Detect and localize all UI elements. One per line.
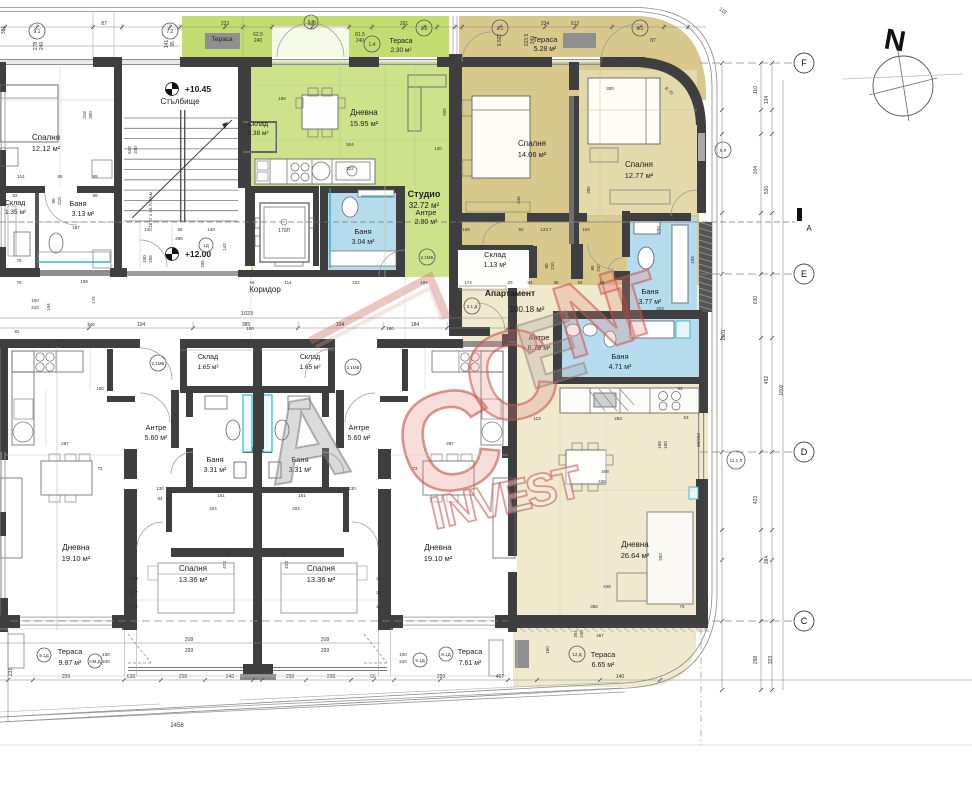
svg-text:99: 99 xyxy=(92,193,98,198)
svg-text:143: 143 xyxy=(222,243,227,251)
svg-text:104: 104 xyxy=(137,322,146,328)
svg-text:530: 530 xyxy=(764,186,770,195)
svg-text:+10.45: +10.45 xyxy=(185,84,212,94)
svg-text:300: 300 xyxy=(376,576,384,581)
svg-text:Тераса: Тераса xyxy=(533,35,558,44)
svg-text:2458: 2458 xyxy=(170,723,184,729)
svg-text:240: 240 xyxy=(579,630,584,638)
svg-text:Спалня: Спалня xyxy=(32,133,60,142)
svg-text:151: 151 xyxy=(217,493,225,498)
svg-text:188: 188 xyxy=(462,227,470,232)
svg-text:Дневна: Дневна xyxy=(424,543,452,552)
svg-text:Склад: Склад xyxy=(300,354,320,361)
svg-text:84: 84 xyxy=(157,496,163,501)
svg-text:15.95 м²: 15.95 м² xyxy=(350,119,379,128)
svg-text:D: D xyxy=(801,447,808,457)
svg-text:333: 333 xyxy=(656,306,664,311)
svg-text:168: 168 xyxy=(657,441,662,449)
svg-text:A: A xyxy=(806,224,812,233)
svg-text:504: 504 xyxy=(346,142,354,147)
svg-text:252: 252 xyxy=(376,604,384,609)
svg-text:104: 104 xyxy=(242,338,250,343)
svg-text:199: 199 xyxy=(80,279,88,284)
svg-text:Дневна: Дневна xyxy=(621,540,649,549)
svg-text:75: 75 xyxy=(16,258,22,263)
svg-text:8 Л: 8 Л xyxy=(720,148,727,153)
svg-text:72: 72 xyxy=(97,466,103,471)
svg-text:130: 130 xyxy=(348,486,356,491)
svg-text:Дневна: Дневна xyxy=(350,108,378,117)
svg-text:210: 210 xyxy=(596,264,601,272)
svg-text:318: 318 xyxy=(82,111,87,119)
svg-text:240: 240 xyxy=(102,659,110,664)
svg-text:14.06 м²: 14.06 м² xyxy=(518,150,547,159)
svg-text:255: 255 xyxy=(148,255,153,263)
svg-text:300: 300 xyxy=(130,576,138,581)
svg-text:1.65 м²: 1.65 м² xyxy=(299,364,321,371)
svg-text:160: 160 xyxy=(545,646,550,654)
svg-text:113: 113 xyxy=(533,416,541,421)
svg-text:165: 165 xyxy=(616,56,624,61)
svg-text:84: 84 xyxy=(577,280,583,285)
svg-text:467: 467 xyxy=(596,633,604,638)
svg-text:3.13 м²: 3.13 м² xyxy=(72,211,95,218)
svg-text:1023: 1023 xyxy=(241,311,253,317)
svg-text:229.5: 229.5 xyxy=(495,34,501,47)
svg-text:123.7: 123.7 xyxy=(540,227,552,232)
svg-text:298: 298 xyxy=(286,674,295,680)
svg-text:232: 232 xyxy=(352,280,360,285)
svg-text:187: 187 xyxy=(72,225,80,230)
svg-text:Тераса: Тераса xyxy=(458,647,483,656)
svg-text:75: 75 xyxy=(679,604,685,609)
svg-text:287: 287 xyxy=(61,441,69,446)
svg-text:114: 114 xyxy=(17,174,25,179)
svg-text:Антре: Антре xyxy=(349,423,370,432)
svg-text:Тераса: Тераса xyxy=(211,36,233,43)
svg-text:53: 53 xyxy=(677,386,683,391)
svg-text:210: 210 xyxy=(57,197,62,205)
svg-text:2.1МБ: 2.1МБ xyxy=(347,365,360,370)
svg-text:180: 180 xyxy=(96,386,104,391)
svg-text:104: 104 xyxy=(420,280,428,285)
svg-text:75: 75 xyxy=(16,280,22,285)
svg-text:Спалня: Спалня xyxy=(518,139,546,148)
svg-text:Баня: Баня xyxy=(354,227,371,236)
svg-text:210: 210 xyxy=(550,262,555,270)
svg-text:250: 250 xyxy=(656,226,661,234)
svg-text:Спалня: Спалня xyxy=(179,564,207,573)
svg-text:160: 160 xyxy=(663,441,668,449)
svg-text:385: 385 xyxy=(586,186,591,194)
svg-text:Баня: Баня xyxy=(69,199,86,208)
svg-text:E: E xyxy=(801,269,807,279)
svg-text:175: 175 xyxy=(91,296,96,304)
svg-text:Студио: Студио xyxy=(408,189,441,199)
svg-text:1.4: 1.4 xyxy=(369,42,376,48)
svg-text:231: 231 xyxy=(8,668,14,677)
svg-text:+12.00: +12.00 xyxy=(185,249,212,259)
svg-text:423: 423 xyxy=(284,561,289,569)
svg-text:240: 240 xyxy=(133,146,138,154)
svg-text:204: 204 xyxy=(753,166,759,175)
svg-text:441: 441 xyxy=(280,549,285,557)
svg-text:381: 381 xyxy=(1,26,7,35)
svg-text:134: 134 xyxy=(764,96,770,105)
svg-text:1501: 1501 xyxy=(721,329,727,340)
svg-text:92: 92 xyxy=(12,193,18,198)
svg-text:2.1МБ: 2.1МБ xyxy=(421,255,434,260)
svg-text:5.60 м²: 5.60 м² xyxy=(145,435,168,442)
svg-text:7.61 м²: 7.61 м² xyxy=(459,660,482,667)
svg-text:287: 287 xyxy=(130,590,138,595)
svg-text:261: 261 xyxy=(400,21,409,27)
svg-text:9.87 м²: 9.87 м² xyxy=(59,660,82,667)
svg-text:9.1Д: 9.1Д xyxy=(415,658,424,663)
svg-text:Тераса: Тераса xyxy=(591,650,616,659)
svg-text:12 Д: 12 Д xyxy=(572,652,581,657)
svg-text:1.13 м²: 1.13 м² xyxy=(484,262,507,269)
svg-text:1Д: 1Д xyxy=(203,243,209,248)
svg-text:80: 80 xyxy=(51,198,56,204)
svg-text:293: 293 xyxy=(614,416,622,421)
svg-text:54: 54 xyxy=(599,280,605,285)
svg-text:140: 140 xyxy=(207,227,215,232)
svg-text:318: 318 xyxy=(321,637,330,643)
svg-text:1.65 м²: 1.65 м² xyxy=(197,364,219,371)
svg-text:36: 36 xyxy=(553,280,559,285)
svg-text:252: 252 xyxy=(130,604,138,609)
svg-text:26.64 м²: 26.64 м² xyxy=(621,551,650,560)
svg-text:300: 300 xyxy=(606,86,614,91)
svg-text:170Л: 170Л xyxy=(278,228,290,234)
svg-text:8.1Д: 8.1Д xyxy=(441,652,450,657)
svg-text:84: 84 xyxy=(527,280,533,285)
svg-text:Стълбище: Стълбище xyxy=(160,97,200,106)
svg-text:Тераса: Тераса xyxy=(58,647,83,656)
svg-text:Дневна: Дневна xyxy=(62,543,90,552)
svg-text:180: 180 xyxy=(386,326,394,331)
svg-text:151: 151 xyxy=(298,493,306,498)
svg-text:11.1 Л: 11.1 Л xyxy=(730,458,743,463)
svg-text:458: 458 xyxy=(603,584,611,589)
svg-text:Коридор: Коридор xyxy=(249,285,281,294)
svg-text:293: 293 xyxy=(185,648,194,654)
svg-text:12.12 м²: 12.12 м² xyxy=(32,144,61,153)
svg-text:F: F xyxy=(801,58,807,68)
svg-text:299: 299 xyxy=(62,674,71,680)
svg-text:210: 210 xyxy=(31,305,39,310)
svg-text:80/203: 80/203 xyxy=(696,433,701,447)
svg-text:505: 505 xyxy=(442,108,447,116)
svg-text:2.1МБ: 2.1МБ xyxy=(152,361,165,366)
svg-text:612: 612 xyxy=(571,21,580,27)
svg-text:130: 130 xyxy=(156,486,164,491)
svg-text:322: 322 xyxy=(346,166,354,171)
svg-text:1602: 1602 xyxy=(779,384,785,395)
svg-text:350: 350 xyxy=(88,111,93,119)
svg-text:13.36 м²: 13.36 м² xyxy=(179,575,208,584)
svg-text:19.10 м²: 19.10 м² xyxy=(62,554,91,563)
svg-text:12.77 м²: 12.77 м² xyxy=(625,171,654,180)
svg-text:80: 80 xyxy=(590,265,595,271)
svg-text:467: 467 xyxy=(496,674,505,680)
svg-text:358: 358 xyxy=(590,604,598,609)
svg-text:194: 194 xyxy=(46,303,51,311)
svg-text:104: 104 xyxy=(336,322,345,328)
svg-text:66: 66 xyxy=(249,280,255,285)
svg-text:630: 630 xyxy=(753,296,759,305)
svg-text:9.1Д: 9.1Д xyxy=(39,653,48,658)
svg-text:Склад: Склад xyxy=(248,121,268,128)
svg-text:5.28 м²: 5.28 м² xyxy=(534,46,557,53)
svg-text:Склад: Склад xyxy=(484,250,506,259)
svg-text:НМ Д: НМ Д xyxy=(89,659,100,664)
svg-text:132: 132 xyxy=(308,21,317,27)
svg-text:106: 106 xyxy=(690,256,695,264)
svg-text:638: 638 xyxy=(127,674,136,680)
svg-text:445: 445 xyxy=(226,549,231,557)
svg-text:240: 240 xyxy=(226,674,235,680)
svg-text:92: 92 xyxy=(518,227,524,232)
svg-text:223: 223 xyxy=(221,21,230,27)
svg-text:100: 100 xyxy=(31,298,39,303)
svg-text:295: 295 xyxy=(200,260,205,268)
svg-text:436: 436 xyxy=(598,479,606,484)
svg-text:318: 318 xyxy=(185,637,194,643)
svg-text:240: 240 xyxy=(254,38,263,44)
svg-text:Спалня: Спалня xyxy=(307,564,335,573)
svg-text:53: 53 xyxy=(683,415,689,420)
svg-text:Антре: Антре xyxy=(416,208,437,217)
svg-text:204: 204 xyxy=(292,506,300,511)
svg-text:240: 240 xyxy=(356,38,365,44)
svg-text:2.1 Д: 2.1 Д xyxy=(467,304,478,309)
svg-text:458: 458 xyxy=(601,469,609,474)
svg-text:354: 354 xyxy=(573,630,578,638)
svg-text:240: 240 xyxy=(39,42,45,51)
svg-text:3.31 м²: 3.31 м² xyxy=(204,467,227,474)
svg-text:452: 452 xyxy=(764,376,770,385)
svg-text:174: 174 xyxy=(464,280,472,285)
svg-text:2.30 м²: 2.30 м² xyxy=(390,47,412,54)
svg-text:202: 202 xyxy=(658,553,663,561)
svg-text:523: 523 xyxy=(127,146,132,154)
svg-text:Спалня: Спалня xyxy=(625,160,653,169)
svg-text:140: 140 xyxy=(144,227,152,232)
svg-text:Апартамент: Апартамент xyxy=(485,288,535,298)
svg-text:82: 82 xyxy=(14,329,20,334)
svg-text:18 ст x 16.7/30см: 18 ст x 16.7/30см xyxy=(148,192,153,228)
svg-text:100: 100 xyxy=(102,652,110,657)
svg-text:246: 246 xyxy=(87,322,95,327)
svg-text:20: 20 xyxy=(507,280,513,285)
svg-text:423: 423 xyxy=(753,496,759,505)
svg-text:104: 104 xyxy=(582,227,590,232)
svg-text:240: 240 xyxy=(530,36,536,45)
svg-text:0.38 м²: 0.38 м² xyxy=(247,130,269,137)
svg-text:5.60 м²: 5.60 м² xyxy=(348,435,371,442)
svg-text:6.65 м²: 6.65 м² xyxy=(592,662,615,669)
svg-text:13.36 м²: 13.36 м² xyxy=(307,575,336,584)
svg-text:114: 114 xyxy=(284,280,292,285)
svg-text:87: 87 xyxy=(101,21,107,27)
svg-text:Склад: Склад xyxy=(198,354,218,361)
svg-text:Тераса: Тераса xyxy=(390,38,413,45)
svg-text:188: 188 xyxy=(278,96,286,101)
svg-text:3.04 м²: 3.04 м² xyxy=(352,239,375,246)
svg-text:295: 295 xyxy=(175,236,183,241)
svg-text:19.10 м²: 19.10 м² xyxy=(424,554,453,563)
svg-text:Баня: Баня xyxy=(206,455,223,464)
svg-text:100: 100 xyxy=(399,652,407,657)
svg-text:423: 423 xyxy=(222,561,227,569)
svg-text:55: 55 xyxy=(177,227,183,232)
svg-text:95: 95 xyxy=(170,41,176,47)
svg-text:140: 140 xyxy=(616,674,625,680)
svg-text:323: 323 xyxy=(768,656,774,665)
svg-text:87: 87 xyxy=(650,38,656,44)
svg-text:298: 298 xyxy=(327,674,336,680)
svg-text:234: 234 xyxy=(541,21,550,27)
svg-text:110: 110 xyxy=(753,86,759,94)
svg-text:Антре: Антре xyxy=(146,423,167,432)
svg-text:384: 384 xyxy=(764,556,770,565)
svg-text:180: 180 xyxy=(246,326,254,331)
svg-text:100: 100 xyxy=(142,255,147,263)
svg-text:240: 240 xyxy=(399,659,407,664)
svg-text:130: 130 xyxy=(434,146,442,151)
svg-text:287: 287 xyxy=(446,441,454,446)
svg-text:287: 287 xyxy=(376,590,384,595)
svg-text:72: 72 xyxy=(412,466,418,471)
svg-text:246: 246 xyxy=(56,338,64,343)
svg-text:293: 293 xyxy=(321,648,330,654)
svg-text:298: 298 xyxy=(753,656,759,665)
svg-text:184: 184 xyxy=(411,322,420,328)
svg-text:C: C xyxy=(801,616,808,626)
svg-text:298: 298 xyxy=(179,674,188,680)
svg-text:2.80 м²: 2.80 м² xyxy=(415,219,438,226)
svg-text:446: 446 xyxy=(516,196,521,204)
svg-text:80: 80 xyxy=(544,263,549,269)
svg-text:204: 204 xyxy=(209,506,217,511)
